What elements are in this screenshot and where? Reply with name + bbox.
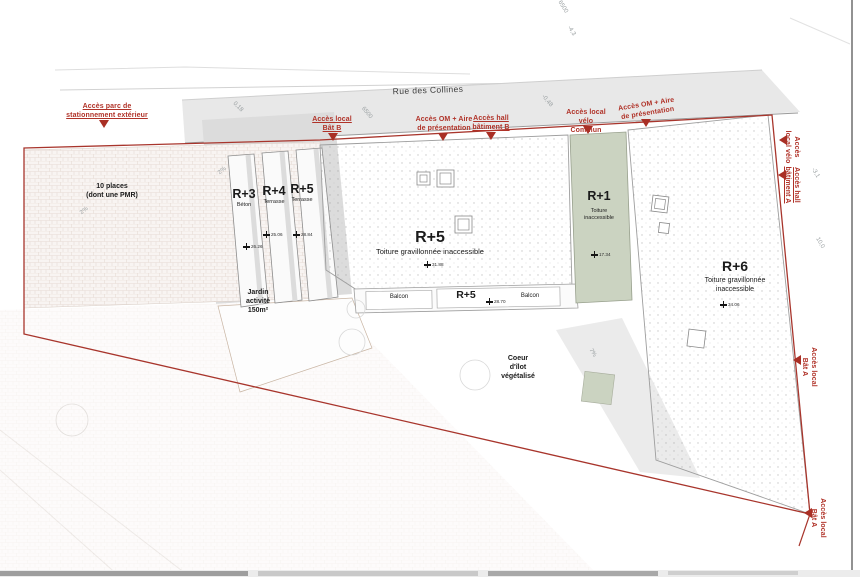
access-velo-commun-arrow-icon (583, 126, 593, 134)
access-hall-bat-b-arrow-icon (486, 132, 496, 140)
dim-label: 10,0 (814, 236, 825, 249)
access-local-bat-a-label: Accès local Bât A (800, 342, 818, 392)
access-parking-label: Accès parc de stationnement extérieur (52, 102, 162, 120)
building-r1-elevation-marker: 17.34 (591, 246, 611, 264)
level-cross-icon (424, 261, 431, 268)
level-cross-icon (591, 251, 598, 258)
building-r5-balcony-elevation-value: 28.70 (494, 299, 506, 304)
building-r5-bar-label: R+5 (287, 182, 317, 198)
parking-places-label: 10 places (dont une PMR) (62, 183, 162, 201)
slope-label: 2% (217, 166, 227, 176)
building-r1-elevation-value: 17.34 (599, 252, 611, 257)
building-r5-bar-roof-label: Terrasse (287, 197, 317, 204)
access-local-bat-a-arrow-icon (793, 355, 801, 365)
dim-label: -4,3 (566, 25, 577, 37)
building-r3-elevation-value: 26.26 (251, 244, 263, 249)
access-om-aire-2-arrow-icon (641, 119, 651, 127)
building-r5-main-roof-label: Toiture gravillonnée inaccessible (350, 247, 510, 256)
street-name: Rue des Collines (373, 83, 483, 97)
slope-label: 7% (587, 348, 597, 359)
dim-label: -0,48 (540, 94, 553, 108)
access-parking-arrow-icon (99, 120, 109, 128)
dim-label: 6500 (360, 106, 373, 120)
building-r6-elevation-value: 34.06 (728, 302, 740, 307)
balcon-left-label: Balcon (381, 294, 417, 302)
access-local-bat-a-sud-arrow-icon (804, 508, 812, 518)
access-om-aire-1-label: Accès OM + Aire de présentation (412, 115, 476, 133)
site-plan: Rue des Collines Accès parc de stationne… (0, 0, 860, 577)
jardin-label: Jardin activité 150m² (233, 289, 283, 315)
level-cross-icon (243, 243, 250, 250)
building-r6-roof-label: Toiture gravillonnée inaccessible (691, 277, 779, 295)
building-r5-main-label: R+5 (395, 228, 465, 248)
coeur-ilot-label: Coeur d'îlot végétalisé (492, 355, 544, 381)
access-hall-bat-b-label: Accès hall bâtiment B (468, 114, 514, 132)
building-r3-roof-label: Béton (229, 202, 259, 209)
access-local-bat-b-arrow-icon (328, 133, 338, 141)
building-r6-label: R+6 (713, 258, 757, 276)
level-cross-icon (486, 298, 493, 305)
building-r4-roof-label: Terrasse (259, 199, 289, 206)
building-r5-bar-elevation-value: 28.84 (301, 232, 313, 237)
access-local-bat-b-label: Accès local Bât B (306, 115, 358, 133)
building-r5-balcony-label: R+5 (450, 289, 482, 302)
dim-label: -3,1 (810, 167, 820, 179)
level-cross-icon (263, 231, 270, 238)
slope-label: 2% (79, 206, 89, 216)
access-hall-bat-a-label: Accès hall bâtiment A (783, 158, 801, 212)
building-r5-main-elevation-marker: 31.88 (424, 256, 444, 274)
building-r5-main-elevation-value: 31.88 (432, 262, 444, 267)
access-local-bat-a-sud-label: Accès local Bât A (809, 492, 827, 544)
level-cross-icon (293, 231, 300, 238)
access-om-aire-1-arrow-icon (438, 133, 448, 141)
building-r4-elevation-marker: 25.06 (263, 226, 283, 244)
building-r4-label: R+4 (259, 184, 289, 200)
balcon-right-label: Balcon (512, 293, 548, 301)
building-r1-roof-label: Toiture inaccessible (577, 208, 621, 222)
dim-label: 0,18 (232, 101, 245, 114)
dim-label: 6500 (557, 0, 569, 14)
building-r5-bar-elevation-marker: 28.84 (293, 226, 313, 244)
level-cross-icon (720, 301, 727, 308)
access-hall-bat-a-arrow-icon (778, 170, 786, 180)
building-r3-elevation-marker: 26.26 (243, 238, 263, 256)
labels-overlay: Rue des Collines Accès parc de stationne… (0, 0, 860, 577)
access-velo-a-arrow-icon (779, 135, 787, 145)
building-r6-elevation-marker: 34.06 (720, 296, 740, 314)
building-r5-balcony-elevation-marker: 28.70 (486, 293, 506, 311)
building-r1-label: R+1 (583, 189, 615, 205)
building-r3-label: R+3 (229, 187, 259, 203)
building-r4-elevation-value: 25.06 (271, 232, 283, 237)
